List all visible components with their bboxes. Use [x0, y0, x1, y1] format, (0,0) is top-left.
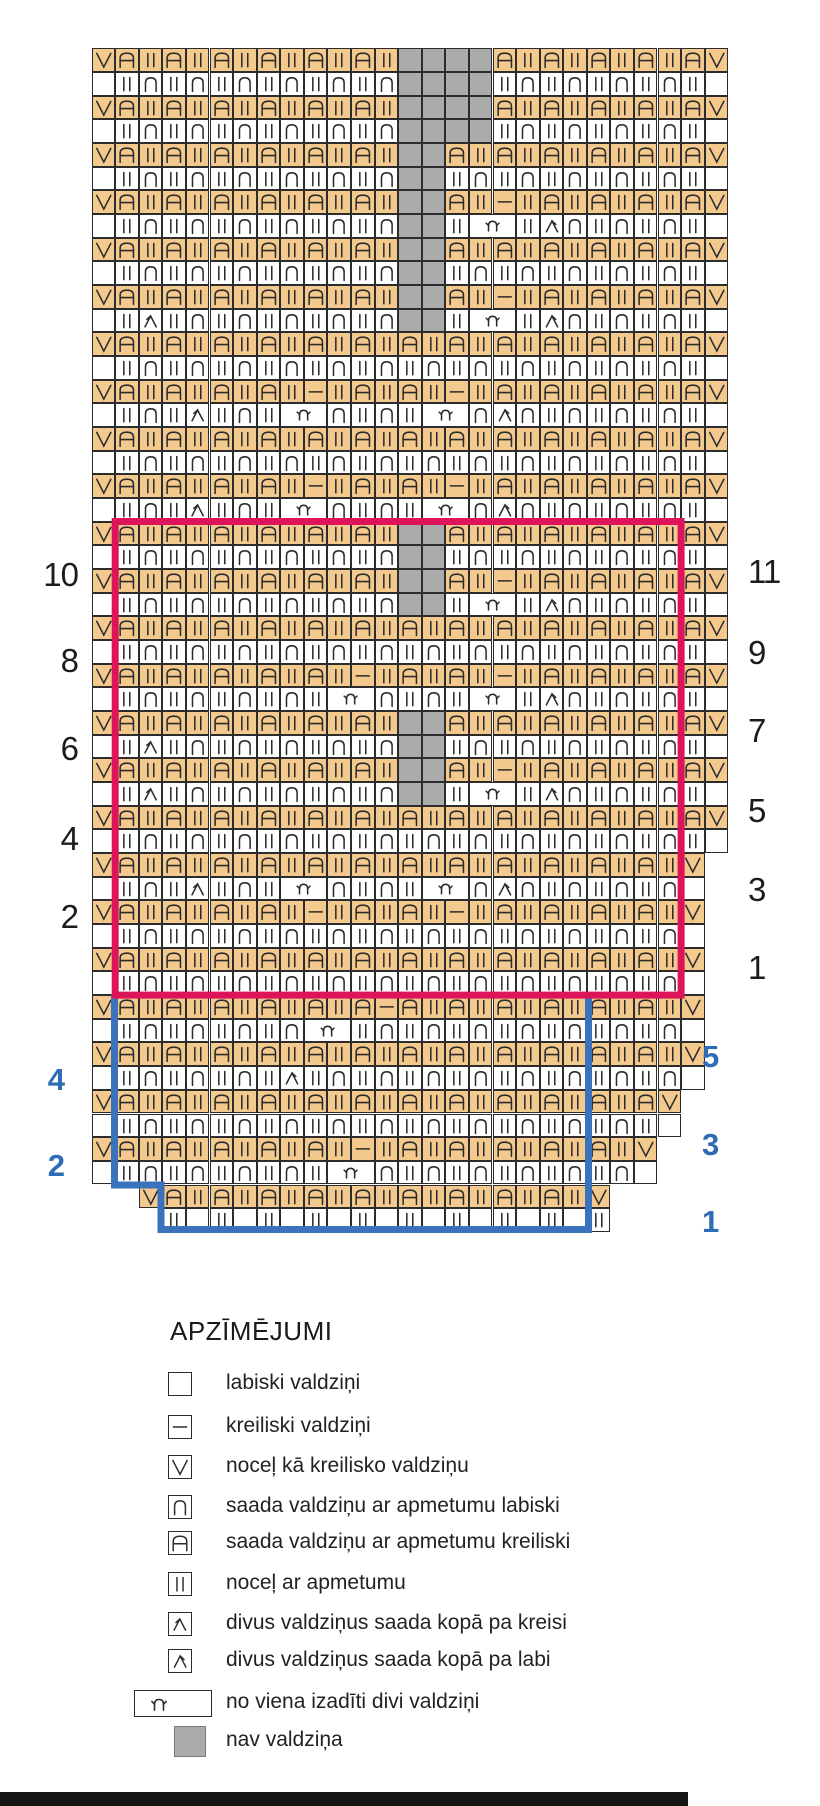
chart-cell	[210, 1042, 234, 1066]
chart-cell	[493, 261, 517, 285]
chart-cell	[162, 593, 186, 617]
chart-cell	[92, 664, 116, 688]
chart-cell	[705, 616, 729, 640]
chart-cell	[540, 119, 564, 143]
chart-cell	[705, 735, 729, 759]
chart-cell	[375, 640, 399, 664]
chart-cell	[516, 735, 540, 759]
chart-cell	[516, 711, 540, 735]
chart-cell	[210, 758, 234, 782]
chart-cell	[681, 616, 705, 640]
chart-cell	[162, 48, 186, 72]
chart-cell	[587, 451, 611, 475]
legend-symbol-gray-icon	[174, 1726, 206, 1757]
chart-cell	[516, 214, 540, 238]
chart-cell	[139, 924, 163, 948]
chart-cell	[516, 1066, 540, 1090]
chart-cell	[422, 735, 446, 759]
chart-cell	[587, 309, 611, 333]
chart-cell	[658, 1042, 682, 1066]
chart-cell	[304, 72, 328, 96]
chart-cell	[210, 48, 234, 72]
chart-cell	[139, 238, 163, 262]
chart-cell	[115, 380, 139, 404]
chart-cell	[516, 1114, 540, 1138]
chart-cell	[445, 1042, 469, 1066]
chart-cell	[445, 427, 469, 451]
chart-cell	[469, 900, 493, 924]
chart-cell	[587, 119, 611, 143]
chart-cell	[92, 72, 116, 96]
chart-cell	[327, 474, 351, 498]
chart-cell	[540, 498, 564, 522]
chart-cell	[186, 948, 210, 972]
chart-cell	[186, 167, 210, 191]
chart-cell	[92, 214, 116, 238]
chart-cell	[351, 261, 375, 285]
chart-cell	[351, 119, 375, 143]
chart-cell	[162, 72, 186, 96]
chart-cell	[375, 593, 399, 617]
chart-cell	[422, 593, 446, 617]
chart-cell	[304, 356, 328, 380]
chart-cell	[540, 616, 564, 640]
chart-cell	[162, 522, 186, 546]
chart-cell	[516, 616, 540, 640]
chart-cell	[92, 356, 116, 380]
chart-cell	[327, 853, 351, 877]
chart-cell	[658, 143, 682, 167]
chart-cell	[540, 214, 564, 238]
chart-cell	[658, 261, 682, 285]
chart-cell	[92, 1114, 116, 1138]
chart-cell	[610, 498, 634, 522]
chart-cell	[634, 1090, 658, 1114]
chart-cell	[327, 782, 351, 806]
chart-cell	[375, 167, 399, 191]
chart-cell	[681, 451, 705, 475]
chart-cell	[375, 427, 399, 451]
chart-cell	[351, 640, 375, 664]
chart-cell	[563, 640, 587, 664]
chart-cell	[469, 332, 493, 356]
chart-cell	[493, 285, 517, 309]
chart-cell	[540, 758, 564, 782]
chart-cell	[115, 640, 139, 664]
row-number: 11	[748, 555, 780, 589]
chart-cell	[398, 451, 422, 475]
chart-cell	[469, 167, 493, 191]
chart-cell	[375, 119, 399, 143]
chart-cell	[233, 238, 257, 262]
chart-cell	[398, 285, 422, 309]
chart-cell	[210, 853, 234, 877]
chart-cell	[210, 119, 234, 143]
chart-cell	[587, 995, 611, 1019]
chart-cell	[139, 261, 163, 285]
chart-cell	[469, 569, 493, 593]
chart-cell	[210, 1019, 234, 1043]
chart-cell	[540, 1019, 564, 1043]
chart-cell	[493, 427, 517, 451]
chart-cell	[351, 48, 375, 72]
chart-cell	[610, 261, 634, 285]
chart-cell	[587, 1066, 611, 1090]
chart-cell	[280, 474, 304, 498]
chart-cell	[280, 735, 304, 759]
chart-cell	[658, 238, 682, 262]
chart-cell	[469, 498, 493, 522]
chart-cell	[493, 640, 517, 664]
chart-cell	[540, 948, 564, 972]
chart-cell	[469, 356, 493, 380]
chart-cell	[422, 948, 446, 972]
chart-cell	[186, 72, 210, 96]
chart-cell	[681, 214, 705, 238]
chart-cell	[233, 616, 257, 640]
chart-cell	[257, 474, 281, 498]
chart-cell	[162, 995, 186, 1019]
chart-cell	[540, 309, 564, 333]
chart-cell	[516, 380, 540, 404]
chart-cell	[705, 711, 729, 735]
chart-cell	[422, 96, 446, 120]
row-number: 8	[28, 644, 78, 678]
chart-cell	[186, 545, 210, 569]
chart-cell	[351, 758, 375, 782]
chart-cell	[115, 735, 139, 759]
chart-cell	[610, 664, 634, 688]
chart-cell	[92, 119, 116, 143]
chart-cell	[162, 96, 186, 120]
chart-cell	[398, 782, 422, 806]
chart-cell	[327, 1137, 351, 1161]
legend-label: nav valdziņa	[226, 1727, 343, 1753]
chart-cell	[493, 1208, 517, 1232]
chart-cell	[327, 711, 351, 735]
chart-cell	[610, 119, 634, 143]
chart-cell	[280, 593, 304, 617]
chart-cell	[375, 900, 399, 924]
chart-cell	[327, 545, 351, 569]
chart-cell	[375, 1042, 399, 1066]
chart-cell	[445, 72, 469, 96]
chart-cell	[139, 143, 163, 167]
chart-cell	[422, 167, 446, 191]
chart-cell	[375, 829, 399, 853]
chart-cell	[610, 806, 634, 830]
chart-cell	[280, 853, 304, 877]
chart-cell	[304, 427, 328, 451]
chart-cell	[375, 1185, 399, 1209]
chart-cell	[186, 687, 210, 711]
chart-cell	[610, 167, 634, 191]
chart-cell	[351, 829, 375, 853]
chart-cell	[280, 971, 304, 995]
chart-cell	[587, 474, 611, 498]
chart-cell	[516, 332, 540, 356]
chart-cell	[493, 948, 517, 972]
chart-cell	[422, 1114, 446, 1138]
chart-cell	[210, 285, 234, 309]
chart-cell	[162, 309, 186, 333]
chart-cell	[139, 995, 163, 1019]
chart-cell	[233, 900, 257, 924]
chart-cell	[115, 498, 139, 522]
chart-cell	[351, 924, 375, 948]
chart-cell	[516, 474, 540, 498]
chart-cell	[186, 474, 210, 498]
chart-cell	[705, 119, 729, 143]
chart-cell	[610, 403, 634, 427]
chart-cell	[162, 167, 186, 191]
chart-cell	[563, 1042, 587, 1066]
chart-cell	[445, 96, 469, 120]
chart-cell	[587, 853, 611, 877]
chart-cell	[233, 711, 257, 735]
chart-cell	[280, 119, 304, 143]
chart-cell	[304, 522, 328, 546]
chart-cell	[516, 900, 540, 924]
chart-cell	[563, 687, 587, 711]
chart-cell	[351, 948, 375, 972]
chart-cell	[280, 167, 304, 191]
chart-cell	[162, 143, 186, 167]
legend-label: saada valdziņu ar apmetumu kreiliski	[226, 1529, 570, 1555]
chart-cell	[115, 1066, 139, 1090]
chart-cell	[563, 1137, 587, 1161]
chart-cell	[445, 285, 469, 309]
chart-cell	[634, 474, 658, 498]
chart-cell	[587, 1114, 611, 1138]
chart-cell	[210, 924, 234, 948]
chart-cell	[469, 735, 493, 759]
chart-cell	[210, 877, 234, 901]
chart-cell	[540, 356, 564, 380]
chart-cell	[610, 309, 634, 333]
chart-cell	[610, 190, 634, 214]
chart-cell	[304, 380, 328, 404]
chart-cell	[375, 711, 399, 735]
chart-cell	[563, 948, 587, 972]
chart-cell	[469, 403, 493, 427]
chart-cell	[304, 285, 328, 309]
blue-row-number: 1	[702, 1205, 718, 1239]
chart-cell	[587, 900, 611, 924]
chart-cell	[233, 948, 257, 972]
chart-cell	[540, 545, 564, 569]
chart-cell	[162, 1185, 186, 1209]
chart-cell	[422, 806, 446, 830]
chart-cell	[375, 1137, 399, 1161]
chart-cell	[610, 758, 634, 782]
row-number: 6	[28, 732, 78, 766]
legend-label: kreiliski valdziņi	[226, 1413, 371, 1439]
chart-cell	[658, 427, 682, 451]
chart-cell	[634, 427, 658, 451]
chart-cell	[327, 948, 351, 972]
chart-cell	[658, 72, 682, 96]
chart-cell	[139, 356, 163, 380]
chart-cell	[351, 1090, 375, 1114]
chart-cell	[92, 806, 116, 830]
chart-cell	[162, 877, 186, 901]
chart-cell	[422, 143, 446, 167]
chart-cell	[658, 593, 682, 617]
chart-cell	[422, 522, 446, 546]
chart-cell	[186, 356, 210, 380]
chart-cell	[327, 1042, 351, 1066]
chart-cell	[186, 616, 210, 640]
chart-cell	[304, 96, 328, 120]
chart-cell	[257, 498, 281, 522]
chart-cell	[257, 1185, 281, 1209]
chart-cell	[92, 900, 116, 924]
chart-cell	[280, 238, 304, 262]
chart-cell	[257, 380, 281, 404]
chart-cell	[351, 971, 375, 995]
blue-row-number: 2	[14, 1149, 64, 1183]
chart-cell	[115, 238, 139, 262]
chart-cell	[445, 545, 469, 569]
chart-cell	[516, 451, 540, 475]
chart-cell	[233, 1114, 257, 1138]
chart-cell	[422, 1137, 446, 1161]
chart-cell	[681, 593, 705, 617]
chart-cell	[304, 214, 328, 238]
chart-cell	[681, 285, 705, 309]
chart-cell	[422, 403, 469, 427]
chart-cell	[516, 593, 540, 617]
chart-cell	[115, 806, 139, 830]
chart-cell	[210, 96, 234, 120]
chart-cell	[186, 1208, 210, 1232]
chart-cell	[563, 900, 587, 924]
chart-cell	[280, 498, 327, 522]
chart-cell	[351, 96, 375, 120]
chart-cell	[634, 1114, 658, 1138]
chart-cell	[493, 995, 517, 1019]
chart-cell	[351, 356, 375, 380]
chart-cell	[375, 403, 399, 427]
chart-cell	[210, 498, 234, 522]
chart-cell	[233, 1161, 257, 1185]
chart-cell	[587, 616, 611, 640]
chart-cell	[162, 119, 186, 143]
chart-cell	[422, 427, 446, 451]
chart-cell	[634, 1066, 658, 1090]
chart-cell	[257, 640, 281, 664]
chart-cell	[115, 948, 139, 972]
chart-cell	[516, 143, 540, 167]
chart-cell	[186, 427, 210, 451]
chart-cell	[398, 214, 422, 238]
chart-cell	[92, 332, 116, 356]
chart-cell	[469, 261, 493, 285]
chart-cell	[92, 427, 116, 451]
chart-cell	[327, 593, 351, 617]
chart-cell	[375, 687, 399, 711]
chart-cell	[139, 72, 163, 96]
chart-cell	[280, 1185, 304, 1209]
chart-cell	[705, 167, 729, 191]
chart-cell	[422, 1185, 446, 1209]
chart-cell	[705, 309, 729, 333]
chart-cell	[92, 474, 116, 498]
chart-cell	[445, 167, 469, 191]
chart-cell	[257, 522, 281, 546]
blue-row-number: 4	[14, 1063, 64, 1097]
chart-cell	[139, 900, 163, 924]
chart-cell	[233, 829, 257, 853]
chart-cell	[681, 735, 705, 759]
chart-cell	[139, 782, 163, 806]
chart-cell	[280, 687, 304, 711]
chart-cell	[280, 948, 304, 972]
chart-cell	[681, 309, 705, 333]
chart-cell	[115, 403, 139, 427]
chart-cell	[139, 474, 163, 498]
chart-cell	[587, 1208, 611, 1232]
chart-cell	[610, 522, 634, 546]
chart-cell	[469, 309, 516, 333]
chart-cell	[351, 853, 375, 877]
chart-cell	[186, 451, 210, 475]
chart-cell	[186, 1042, 210, 1066]
chart-cell	[257, 711, 281, 735]
chart-cell	[304, 900, 328, 924]
chart-cell	[422, 119, 446, 143]
chart-cell	[233, 806, 257, 830]
chart-cell	[162, 711, 186, 735]
chart-cell	[115, 877, 139, 901]
chart-cell	[681, 143, 705, 167]
chart-cell	[681, 119, 705, 143]
chart-cell	[210, 829, 234, 853]
chart-cell	[186, 285, 210, 309]
chart-cell	[186, 900, 210, 924]
chart-cell	[540, 380, 564, 404]
chart-cell	[587, 1042, 611, 1066]
chart-cell	[351, 214, 375, 238]
chart-cell	[398, 498, 422, 522]
chart-cell	[115, 782, 139, 806]
chart-cell	[658, 806, 682, 830]
chart-cell	[186, 214, 210, 238]
chart-cell	[375, 356, 399, 380]
chart-cell	[233, 522, 257, 546]
chart-cell	[540, 1042, 564, 1066]
chart-cell	[516, 1185, 540, 1209]
chart-cell	[658, 995, 682, 1019]
chart-cell	[115, 1114, 139, 1138]
chart-cell	[540, 1208, 564, 1232]
chart-cell	[445, 474, 469, 498]
chart-cell	[445, 1137, 469, 1161]
legend-symbol-dash-icon	[168, 1415, 192, 1439]
chart-cell	[516, 877, 540, 901]
chart-cell	[563, 143, 587, 167]
chart-cell	[563, 356, 587, 380]
chart-cell	[115, 995, 139, 1019]
chart-cell	[634, 238, 658, 262]
chart-cell	[658, 474, 682, 498]
chart-cell	[681, 545, 705, 569]
chart-cell	[375, 474, 399, 498]
chart-cell	[422, 190, 446, 214]
chart-cell	[139, 853, 163, 877]
chart-cell	[658, 498, 682, 522]
